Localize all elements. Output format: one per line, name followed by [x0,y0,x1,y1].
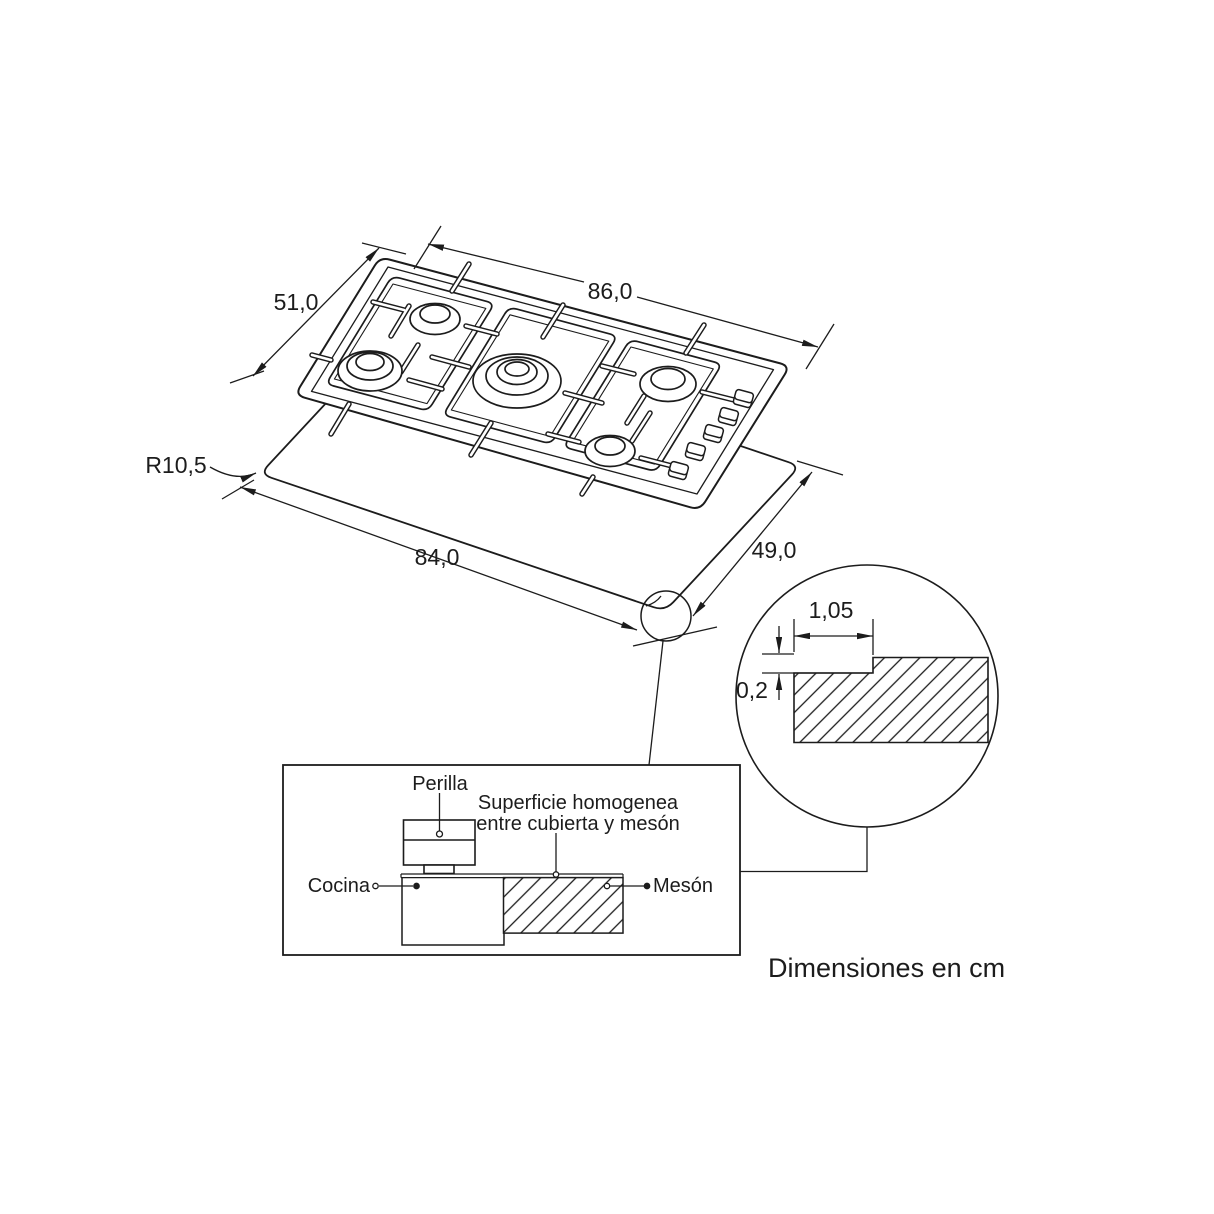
burner-right-upper [640,367,696,402]
cooktop-top-view [298,259,786,508]
units-note: Dimensiones en cm [768,953,1005,983]
label-surface-line1: Superficie homogenea [478,792,679,814]
label-width-86: 86,0 [588,278,633,304]
label-cutout-width-84: 84,0 [415,544,460,570]
label-corner-radius: R10,5 [145,452,206,478]
burner-right-lower [585,436,635,467]
label-lip-height: 0,2 [736,677,768,703]
label-knob: Perilla [412,773,468,795]
burner-small-left [410,304,460,335]
label-countertop: Mesón [653,875,713,897]
label-stove: Cocina [308,875,371,897]
dimension-cutout-width-84 [222,480,717,646]
radius-leader [210,467,256,476]
installation-diagram-page: 86,0 51,0 84,0 49,0 R10,5 1,05 0,2 Peril… [0,0,1214,1214]
technical-diagram: 86,0 51,0 84,0 49,0 R10,5 1,05 0,2 Peril… [0,0,1214,1214]
label-overlap: 1,05 [809,597,854,623]
detail-source-circle [641,591,691,641]
burner-wok-center [473,354,561,408]
label-surface-line2: entre cubierta y mesón [476,813,679,835]
burner-large-left [338,351,402,391]
label-depth-51: 51,0 [274,289,319,315]
edge-detail-view [736,565,998,827]
label-cutout-depth-49: 49,0 [752,537,797,563]
